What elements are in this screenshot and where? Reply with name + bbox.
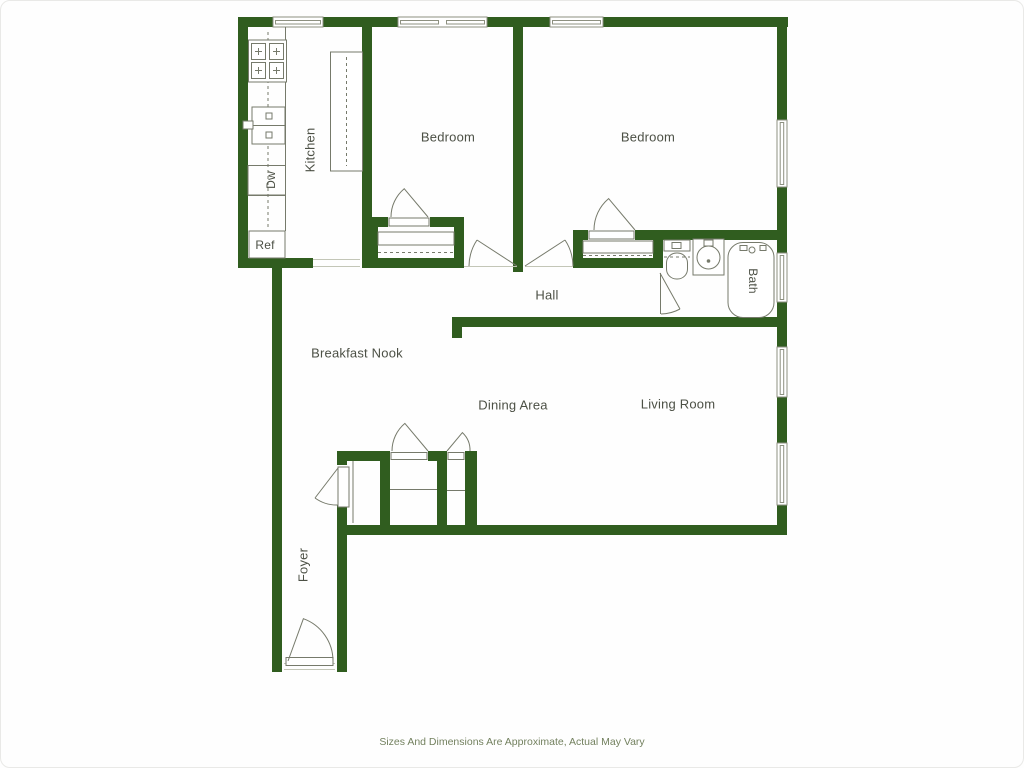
window-bath — [777, 253, 787, 302]
room-label-foyer: Foyer — [296, 548, 311, 582]
bathroom-sink-icon — [693, 239, 724, 275]
room-label-bedroom-1: Bedroom — [421, 130, 475, 145]
window-bedroom1-double — [398, 17, 487, 27]
bedroom2-closet-door — [589, 199, 635, 239]
room-label-hall: Hall — [535, 288, 558, 303]
fixture-label-dishwasher: Dw — [264, 171, 278, 189]
disclaimer-text: Sizes And Dimensions Are Approximate, Ac… — [379, 736, 644, 748]
stove-icon — [249, 40, 287, 82]
window-living-2 — [777, 443, 787, 505]
walls — [238, 17, 788, 672]
closet-west-door-swing — [315, 467, 349, 507]
window-kitchen — [273, 17, 323, 27]
entry-door-swing — [284, 619, 335, 670]
room-label-kitchen: Kitchen — [303, 128, 318, 173]
bedroom1-door-swing — [469, 240, 517, 266]
dining-closet-interior — [353, 461, 465, 523]
room-label-bath: Bath — [746, 268, 760, 294]
room-label-breakfast-nook: Breakfast Nook — [311, 346, 403, 361]
bedroom2-door-swing — [525, 240, 573, 266]
room-label-living-room: Living Room — [641, 397, 715, 412]
kitchen-island-counter — [331, 52, 363, 171]
fixture-label-refrigerator: Ref — [255, 238, 274, 252]
window-living-1 — [777, 347, 787, 397]
window-bedroom2-right — [777, 120, 787, 187]
room-label-bedroom-2: Bedroom — [621, 130, 675, 145]
floor-plan-drawing — [0, 0, 1024, 768]
window-bedroom2-top — [550, 17, 603, 27]
opening-kitchen-threshold — [313, 260, 360, 267]
kitchen-sink-icon — [243, 107, 285, 144]
bedroom1-closet-door — [389, 189, 429, 226]
bedroom1-closet-shelf — [378, 232, 454, 253]
bedroom2-closet-shelf — [583, 241, 653, 256]
room-label-dining-area: Dining Area — [478, 398, 547, 413]
toilet-icon — [664, 240, 690, 279]
floor-plan: Bedroom Bedroom Kitchen Hall Breakfast N… — [0, 0, 1024, 768]
dining-closet-door-left — [391, 423, 428, 459]
